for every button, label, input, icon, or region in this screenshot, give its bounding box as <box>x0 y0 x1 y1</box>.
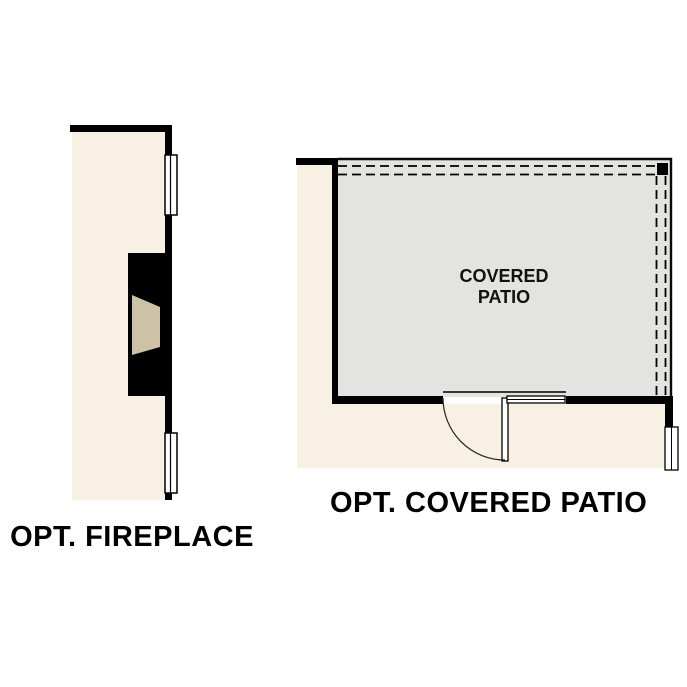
patio-right-wall-lower <box>665 404 673 427</box>
patio-bottom-wall-right <box>566 396 673 404</box>
covered-patio-room-label: COVERED PATIO <box>404 266 604 308</box>
floor-plan-drawing <box>0 0 687 687</box>
fireplace-plan <box>70 125 177 500</box>
covered-patio-plan <box>296 158 678 470</box>
patio-side-window <box>665 427 678 470</box>
fireplace-right-wall-upper <box>165 125 172 155</box>
fireplace-top-wall <box>70 125 172 132</box>
room-label-line2: PATIO <box>404 287 604 308</box>
fireplace-lower-window <box>165 433 177 493</box>
fireplace-right-wall-stub <box>165 493 172 500</box>
floor-plan-canvas: COVERED PATIO OPT. FIREPLACE OPT. COVERE… <box>0 0 687 687</box>
fireplace-plan-label: OPT. FIREPLACE <box>0 521 264 554</box>
covered-patio-plan-label: OPT. COVERED PATIO <box>330 487 633 520</box>
patio-bottom-wall-left <box>332 396 443 404</box>
patio-left-wall <box>332 158 338 404</box>
room-label-line1: COVERED <box>404 266 604 287</box>
support-post <box>657 163 668 175</box>
patio-rear-window <box>507 396 565 403</box>
patio-top-wall-stub <box>296 158 338 165</box>
fireplace-upper-window <box>165 155 177 215</box>
